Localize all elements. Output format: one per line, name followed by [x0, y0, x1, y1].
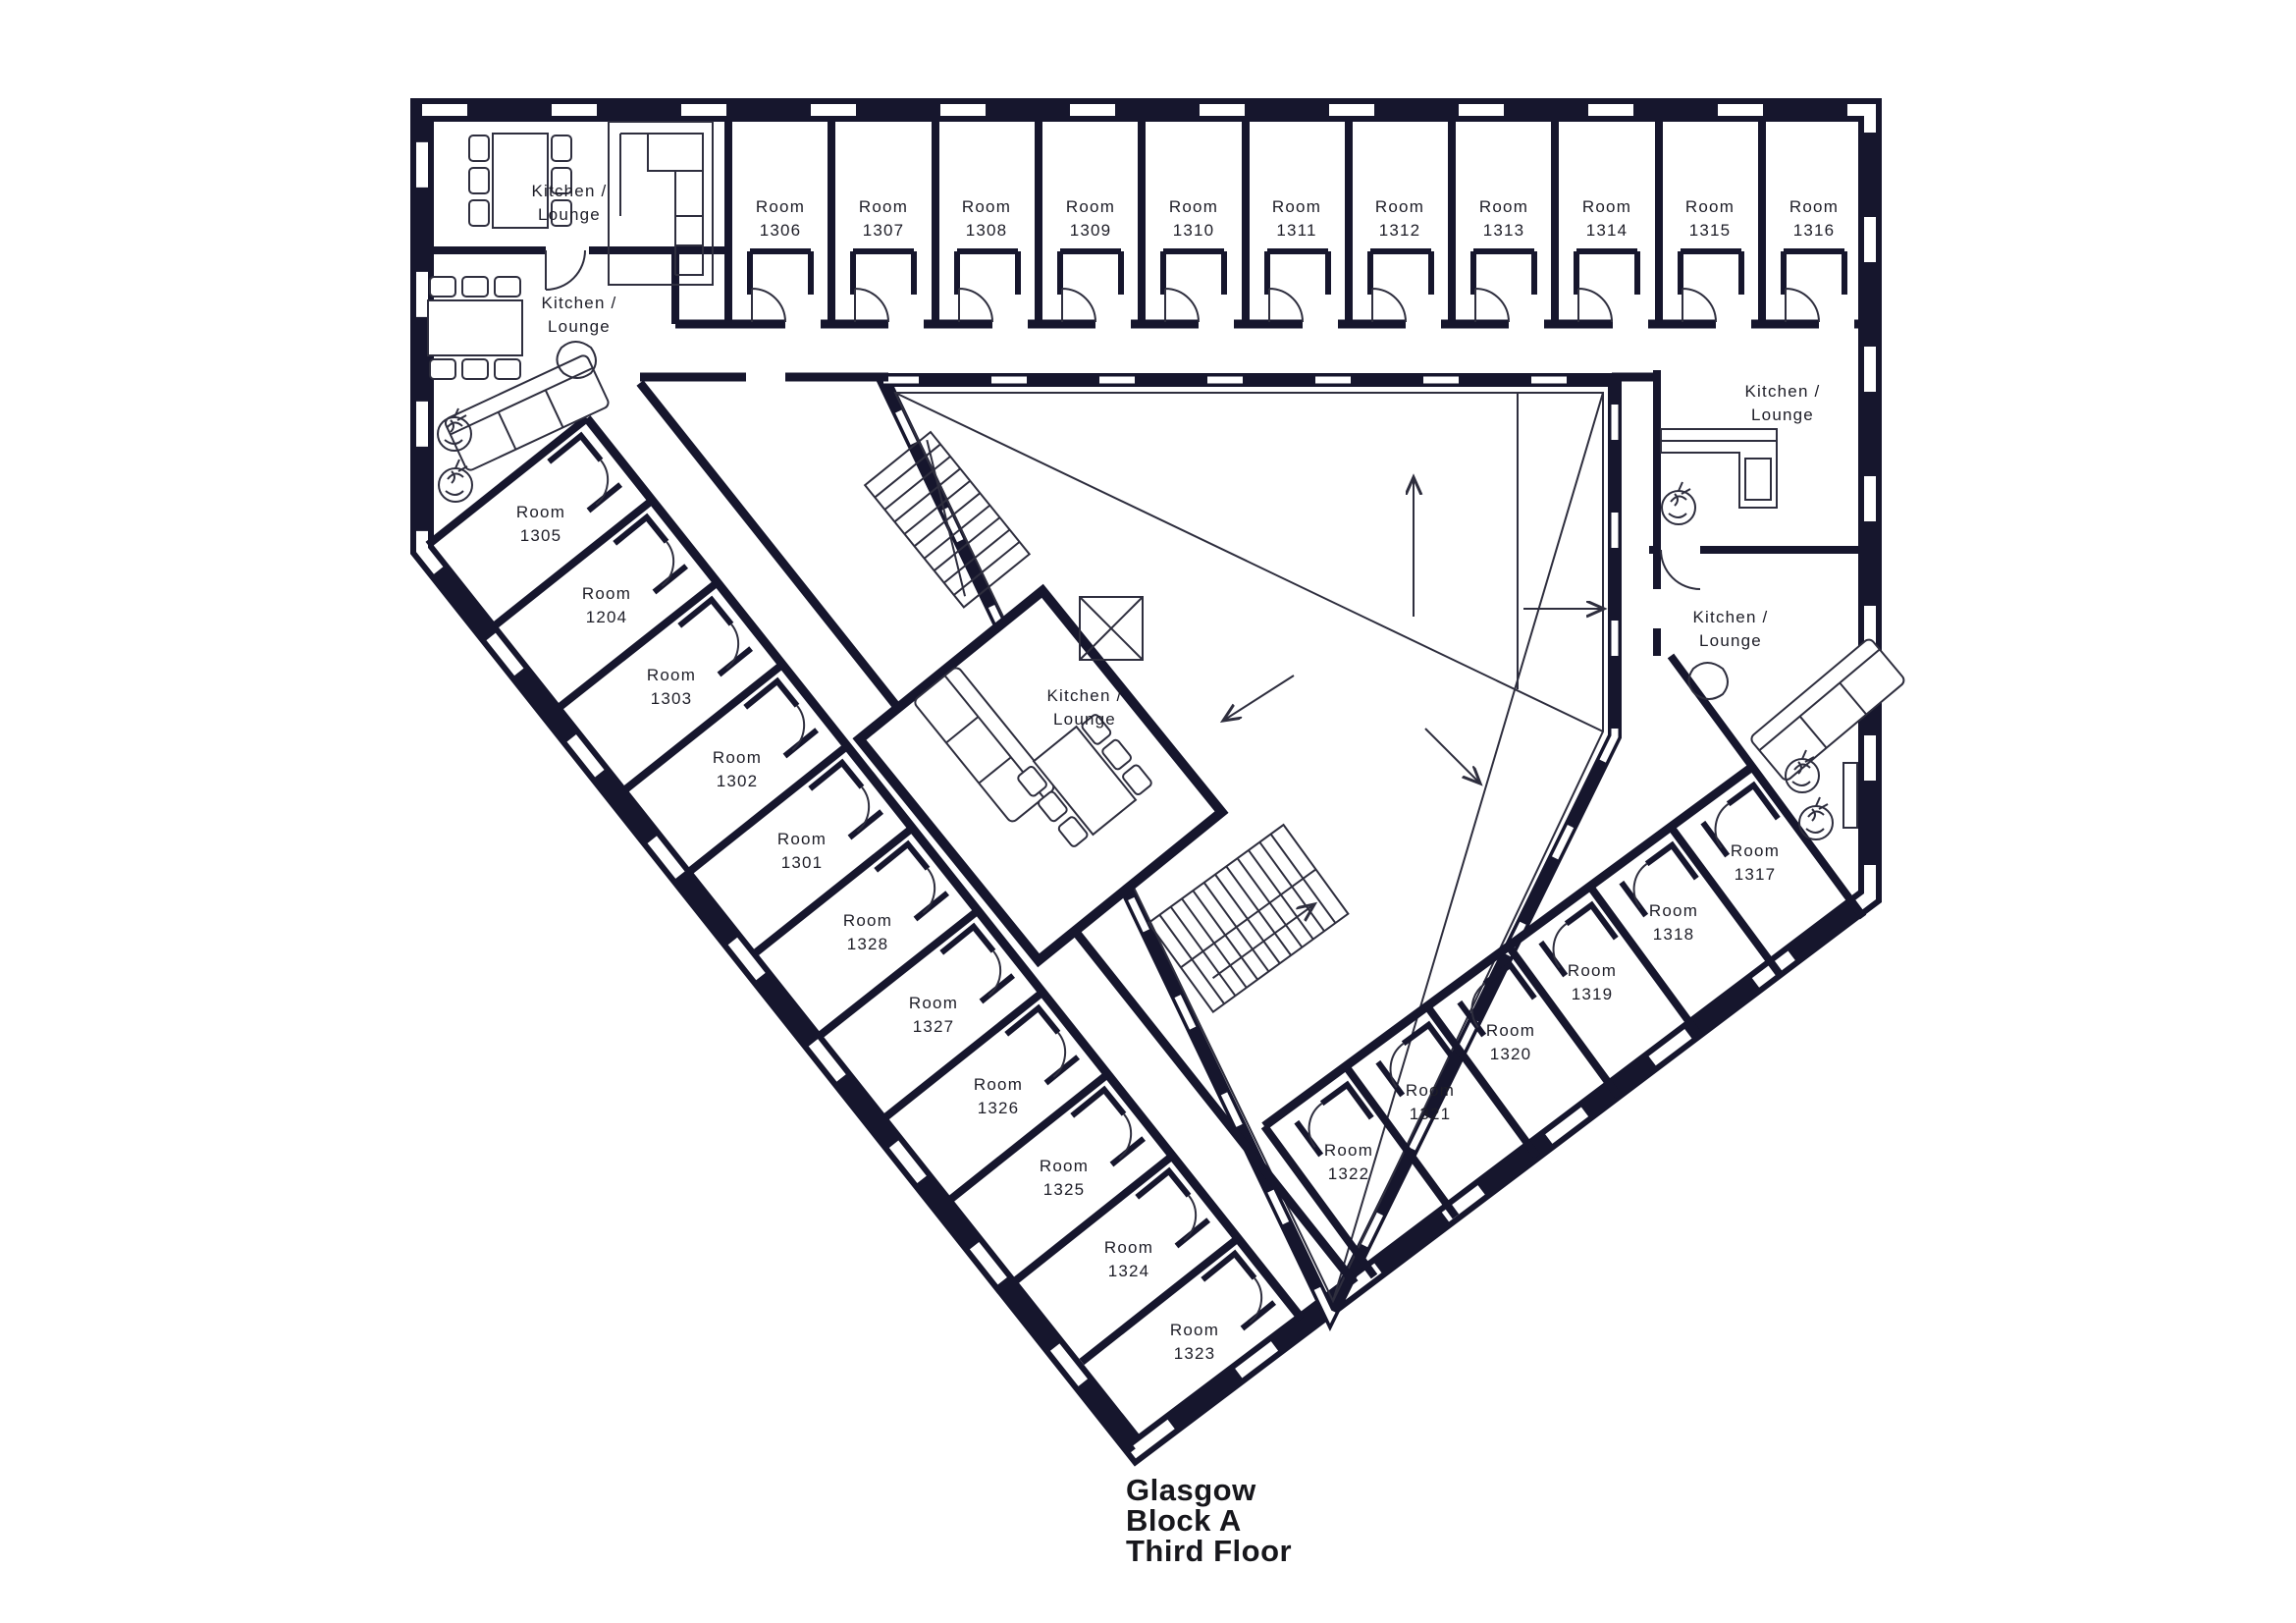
room-label: Room1324 [1104, 1238, 1153, 1280]
room-word: Room [843, 911, 892, 930]
room-number: 1327 [913, 1017, 955, 1036]
bathroom-pod [1370, 251, 1431, 322]
room-word: Room [1066, 197, 1115, 216]
kitchen-label-line2: Lounge [1751, 406, 1814, 424]
staircase [865, 432, 1030, 607]
room-number: 1323 [1174, 1344, 1216, 1363]
room-word: Room [909, 994, 958, 1012]
room-word: Room [974, 1075, 1023, 1094]
bathroom-pod [1576, 251, 1637, 322]
room-word: Room [1568, 961, 1617, 980]
room-label: Room1326 [974, 1075, 1023, 1117]
room-word: Room [756, 197, 805, 216]
room-word: Room [1685, 197, 1735, 216]
room-number: 1307 [863, 221, 905, 240]
room-number: 1325 [1043, 1180, 1086, 1199]
room-label: Room1301 [777, 830, 827, 872]
room-label: Room1313 [1479, 197, 1528, 240]
room-number: 1319 [1572, 985, 1614, 1003]
kitchen-label-line1: Kitchen / [542, 294, 617, 312]
room-label: Room1327 [909, 994, 958, 1036]
room-word: Room [1649, 901, 1698, 920]
room-word: Room [777, 830, 827, 848]
room-label: Room1309 [1066, 197, 1115, 240]
room-label: Room1311 [1272, 197, 1321, 240]
room-number: 1311 [1276, 221, 1316, 240]
room-word: Room [1375, 197, 1424, 216]
room-label: Room1319 [1568, 961, 1617, 1003]
corner-sofa [609, 122, 713, 285]
bathroom-pod [1784, 251, 1844, 322]
room-number: 1312 [1379, 221, 1421, 240]
door-gap [888, 318, 924, 330]
kitchen-label-line2: Lounge [548, 317, 611, 336]
door-gap [1819, 318, 1854, 330]
room-word: Room [1272, 197, 1321, 216]
side-table [1688, 663, 1728, 699]
door-gap [1199, 318, 1234, 330]
room-number: 1320 [1490, 1045, 1532, 1063]
kitchen-label-line2: Lounge [1053, 710, 1116, 729]
dining-table [428, 277, 522, 379]
kitchen-label-line1: Kitchen / [1693, 608, 1769, 626]
plant [1662, 482, 1695, 524]
room-number: 1309 [1070, 221, 1112, 240]
room-number: 1305 [520, 526, 562, 545]
slope-arrow-down-right [1425, 729, 1480, 784]
room-word: Room [1486, 1021, 1535, 1040]
room-word: Room [1170, 1321, 1219, 1339]
room-word: Room [859, 197, 908, 216]
door-gap [1303, 318, 1338, 330]
room-label: Room1308 [962, 197, 1011, 240]
room-label: Room1204 [582, 584, 631, 626]
room-label: Room1316 [1789, 197, 1839, 240]
door-gap [546, 244, 589, 256]
room-label: Room1310 [1169, 197, 1218, 240]
elevator-icon [1080, 597, 1143, 660]
kitchen-label-line2: Lounge [538, 205, 601, 224]
room-label: Room1328 [843, 911, 892, 953]
bathroom-pod [957, 251, 1018, 322]
kitchen-lounge-label: Kitchen /Lounge [1745, 382, 1821, 424]
door-gap [1652, 589, 1662, 628]
slope-arrow-down-left [1223, 676, 1294, 721]
kitchen-label-line1: Kitchen / [532, 182, 608, 200]
room-label: Room1303 [647, 666, 696, 708]
door-gap [1406, 318, 1441, 330]
room-number: 1321 [1410, 1105, 1452, 1123]
room-number: 1318 [1653, 925, 1695, 944]
room-number: 1308 [966, 221, 1008, 240]
room-label: Room1322 [1324, 1141, 1373, 1183]
room-word: Room [1731, 841, 1780, 860]
room-word: Room [1479, 197, 1528, 216]
room-label: Room1323 [1170, 1321, 1219, 1363]
kitchen-label-line1: Kitchen / [1745, 382, 1821, 401]
room-number: 1328 [847, 935, 889, 953]
room-number: 1310 [1173, 221, 1215, 240]
plan-title-line1: Glasgow [1126, 1473, 1256, 1507]
room-word: Room [1104, 1238, 1153, 1257]
room-word: Room [1789, 197, 1839, 216]
floor-plan-page: Room1306 Room1307 Room1308 Room1309 Room… [0, 0, 2296, 1623]
bathroom-pod [1060, 251, 1121, 322]
door-gap [1661, 544, 1700, 556]
radiator [1843, 763, 1857, 828]
plan-title-line3: Third Floor [1126, 1534, 1292, 1568]
room-number: 1314 [1586, 221, 1629, 240]
kitchen-lounge-label: Kitchen /Lounge [1693, 608, 1769, 650]
room-label: Room1312 [1375, 197, 1424, 240]
door-gap [1509, 318, 1544, 330]
room-number: 1301 [781, 853, 824, 872]
room-number: 1315 [1689, 221, 1732, 240]
kitchen-lounge-label: Kitchen /Lounge [542, 294, 617, 336]
title-block: Glasgow Block A Third Floor [1126, 1473, 1292, 1568]
room-number: 1317 [1735, 865, 1777, 884]
bathroom-pod [853, 251, 914, 322]
plan-title-line2: Block A [1126, 1503, 1242, 1538]
room-word: Room [516, 503, 565, 521]
kitchen-label-line2: Lounge [1699, 631, 1762, 650]
room-word: Room [1406, 1081, 1455, 1100]
room-number: 1302 [717, 772, 759, 790]
room-label: Room1318 [1649, 901, 1698, 944]
room-number: 1306 [760, 221, 802, 240]
room-number: 1313 [1483, 221, 1525, 240]
room-label: Room1305 [516, 503, 565, 545]
room-word: Room [1169, 197, 1218, 216]
sofa [1749, 637, 1906, 782]
room-label: Room1307 [859, 197, 908, 240]
room-label: Room1314 [1582, 197, 1631, 240]
wing-inner-wall [1264, 767, 1752, 1126]
room-label: Room1325 [1040, 1157, 1089, 1199]
room-word: Room [647, 666, 696, 684]
room-word: Room [1324, 1141, 1373, 1160]
room-word: Room [1582, 197, 1631, 216]
bathroom-pod [750, 251, 811, 322]
floor-plan-drawing: Room1306 Room1307 Room1308 Room1309 Room… [0, 0, 2296, 1623]
door-gap [1095, 318, 1131, 330]
room-label: Room1317 [1731, 841, 1780, 884]
kitchen-label-line1: Kitchen / [1047, 686, 1123, 705]
room-number: 1322 [1328, 1164, 1370, 1183]
room-word: Room [962, 197, 1011, 216]
bathroom-pod [1163, 251, 1224, 322]
room-number: 1326 [978, 1099, 1020, 1117]
room-word: Room [1040, 1157, 1089, 1175]
room-number: 1303 [651, 689, 693, 708]
room-label: Room1315 [1685, 197, 1735, 240]
room-label: Room1306 [756, 197, 805, 240]
bathroom-pod [1267, 251, 1328, 322]
room-word: Room [582, 584, 631, 603]
room-number: 1204 [586, 608, 628, 626]
door-gap [746, 371, 785, 383]
room-label: Room1302 [713, 748, 762, 790]
door-gap [992, 318, 1028, 330]
room-number: 1316 [1793, 221, 1836, 240]
bathroom-pod [1473, 251, 1534, 322]
room-number: 1324 [1108, 1262, 1150, 1280]
door-gap [1613, 318, 1648, 330]
room-label: Room1320 [1486, 1021, 1535, 1063]
room-word: Room [713, 748, 762, 767]
door-gap [1716, 318, 1751, 330]
door-gap [785, 318, 821, 330]
bathroom-pod [1681, 251, 1741, 322]
